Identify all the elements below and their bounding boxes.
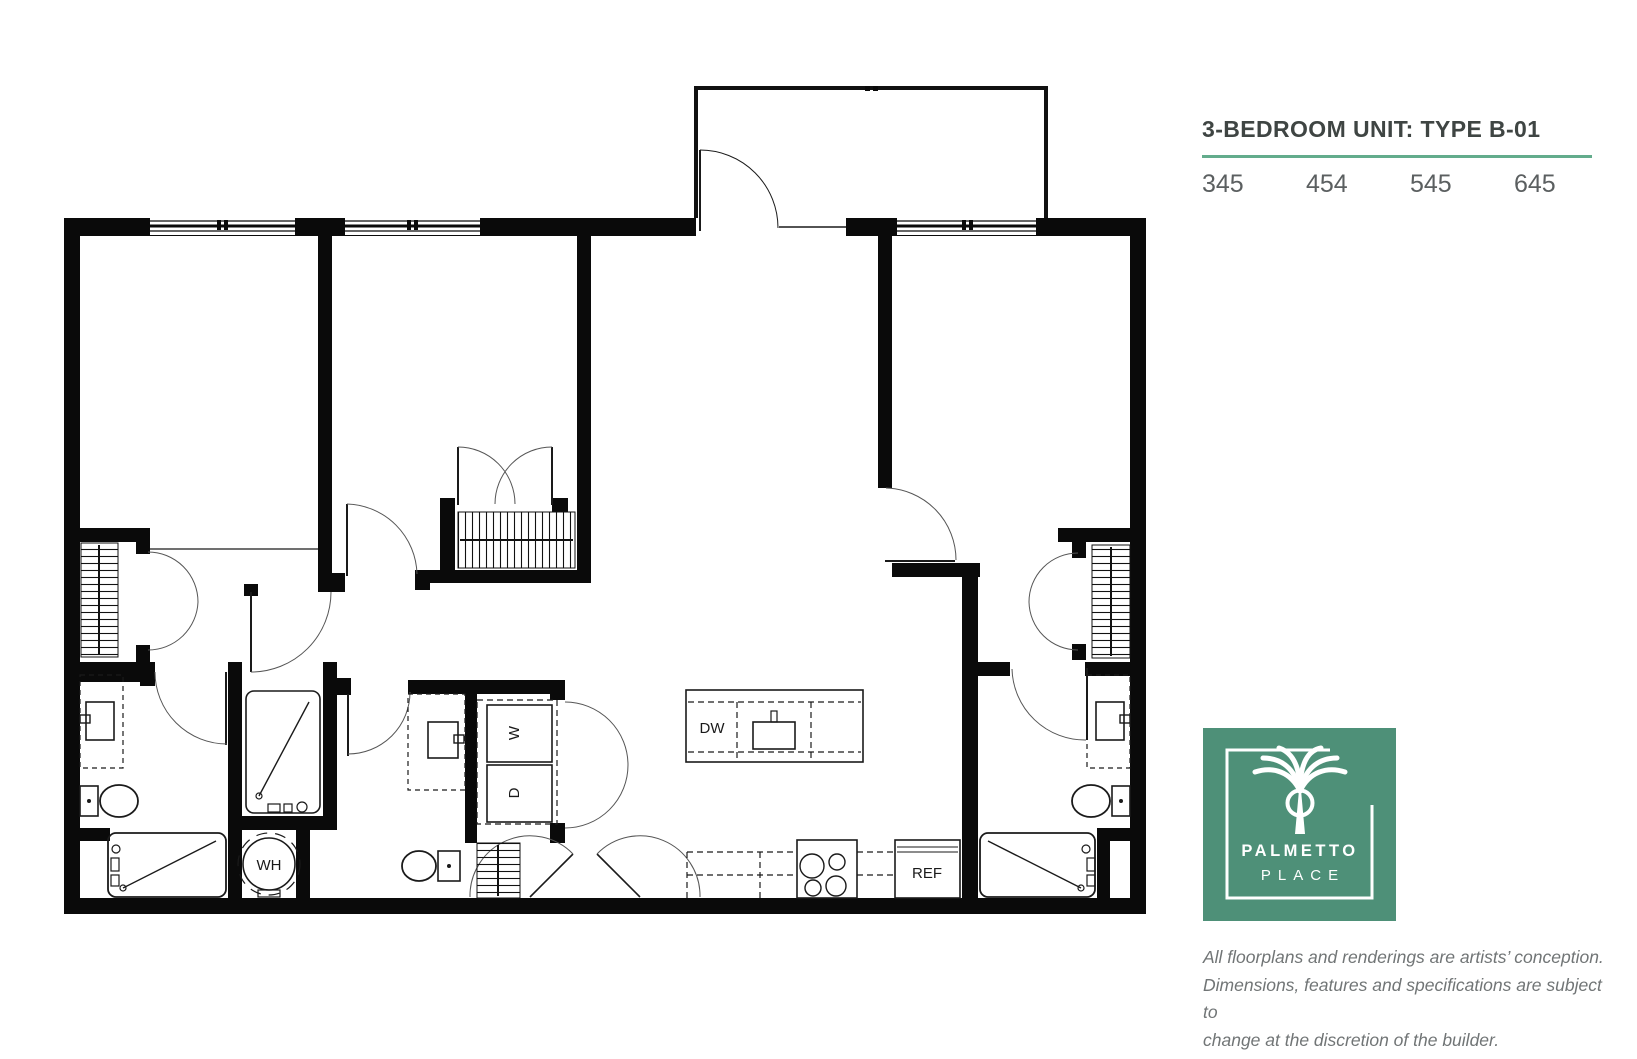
logo-line1: PALMETTO (1241, 842, 1358, 860)
refrigerator: REF (895, 840, 960, 898)
disclaimer: All floorplans and renderings are artist… (1203, 944, 1613, 1054)
washer-label: W (506, 725, 523, 740)
bedroom-2-door (347, 504, 417, 576)
outer-walls (64, 218, 1146, 914)
unit-number: 345 (1202, 170, 1244, 199)
unit-number: 454 (1306, 170, 1348, 199)
title-underline (1202, 155, 1592, 158)
entry-vestibule (694, 86, 1048, 218)
kitchen-island: DW (686, 690, 863, 762)
closet-3-doors (1029, 553, 1078, 650)
linen-closet (477, 843, 520, 898)
bath-1 (80, 675, 226, 897)
disclaimer-line: change at the discretion of the builder. (1203, 1027, 1613, 1055)
entry-door (700, 150, 846, 231)
closet-1-doors (148, 552, 198, 650)
page: WH W D (0, 0, 1637, 1059)
disclaimer-line: Dimensions, features and specifications … (1203, 972, 1613, 1027)
faucet-1 (80, 715, 90, 723)
closet-1 (81, 543, 118, 657)
page-title: 3-BEDROOM UNIT: TYPE B-01 (1202, 116, 1602, 143)
floor-plan: WH W D (0, 0, 1160, 1059)
unit-number: 645 (1514, 170, 1556, 199)
kitchen: REF DW (686, 690, 960, 898)
bath-2-door (348, 692, 410, 756)
window-bedroom-3 (897, 220, 1036, 236)
bathtub-3 (980, 833, 1095, 897)
window-bedroom-1 (150, 220, 295, 236)
laundry-closet-doors (565, 702, 628, 828)
bath-3-door (1012, 668, 1087, 740)
kitchen-counter (687, 852, 895, 898)
stove (797, 840, 857, 898)
closet-3 (1092, 545, 1130, 658)
faucet-3 (1120, 715, 1130, 723)
brand-logo: PALMETTO PLACE (1203, 728, 1396, 921)
toilet-3 (1072, 785, 1130, 817)
laundry-stack: W D (477, 700, 557, 824)
window-bedroom-2 (345, 220, 480, 236)
faucet-2 (454, 735, 464, 743)
bath-1-door (155, 672, 227, 745)
interior-walls (64, 236, 1146, 898)
refrigerator-label: REF (912, 865, 942, 882)
toilet-1 (80, 785, 138, 817)
vanity-2 (408, 694, 465, 790)
bedroom-3-door (885, 488, 956, 561)
dishwasher-label: DW (700, 720, 726, 737)
logo-line2: PLACE (1261, 867, 1345, 884)
dryer-label: D (506, 787, 523, 798)
bathtub-1 (108, 833, 226, 897)
toilet-2 (402, 851, 460, 881)
closet-2-doors (458, 447, 552, 505)
island-faucet (771, 711, 777, 722)
water-heater: WH (238, 833, 300, 897)
closet-2 (458, 512, 575, 568)
disclaimer-line: All floorplans and renderings are artist… (1203, 944, 1613, 972)
water-heater-label: WH (257, 857, 282, 874)
unit-number: 545 (1410, 170, 1452, 199)
island-sink (753, 722, 795, 749)
unit-numbers: 345 454 545 645 (1202, 170, 1592, 200)
shower-room-door (251, 592, 331, 672)
